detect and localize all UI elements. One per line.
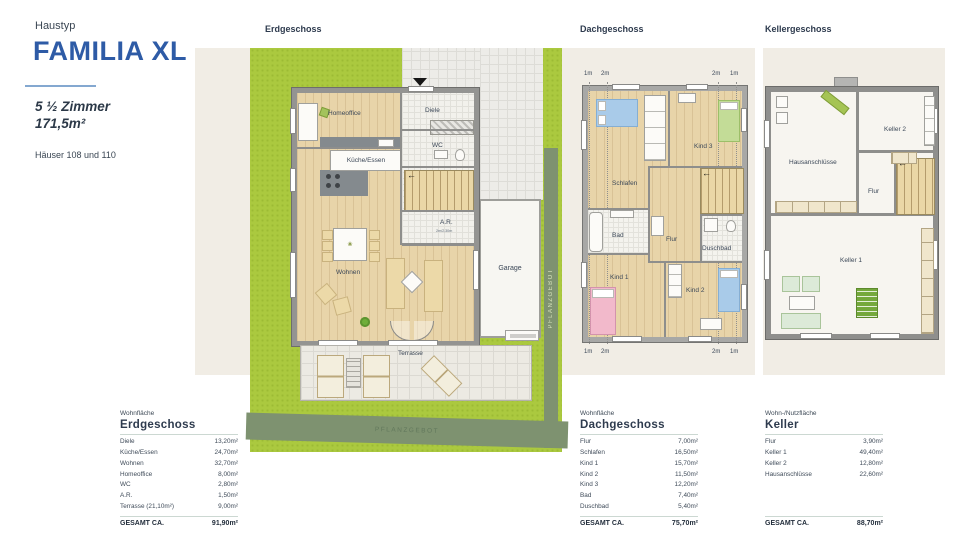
wardrobe [644,95,666,161]
divider [120,516,238,517]
eg-wall-stair-ar [402,210,474,212]
window [686,84,708,90]
table-rows: Flur3,90m² Keller 149,40m² Keller 212,80… [765,437,883,513]
kitchen-sink [378,139,394,147]
pillow [592,289,614,298]
eg-wall-wc-stair [402,166,474,168]
window [800,333,832,339]
stove-burners [326,174,331,179]
table-row: Kind 115,70m² [580,459,698,470]
dg-measure: 1m [584,349,592,355]
page-title: FAMILIA XL [33,36,187,67]
table-total: GESAMT CA.91,90m² [120,520,238,527]
area-table-erdgeschoss: Wohnfläche Erdgeschoss Diele13,20m² Küch… [120,410,238,527]
ar-label: A.R. [440,219,453,226]
table-row: A.R.1,50m² [120,491,238,502]
appliance [776,112,788,124]
table-row: Flur3,90m² [765,437,883,448]
entrance-arrow-icon [413,78,427,86]
pflanzgebot-hedge-label: PFLANZGEBOT [548,268,554,329]
dg-measure: 2m [712,349,720,355]
chair [322,252,333,262]
sofa [424,260,443,312]
table-row: Kind 312,20m² [580,480,698,491]
table-row: Hausanschlüsse22,60m² [765,470,883,481]
kueche-label: Küche/Essen [347,157,385,164]
keller2-label: Keller 2 [884,126,906,133]
garage-room: Garage [479,199,541,338]
dg-wall [648,166,650,262]
total-area: 171,5m² [35,116,85,131]
dg-wall [700,214,702,262]
pillow [720,270,738,278]
chair [369,252,380,262]
driveway [480,48,543,200]
table-row: Küche/Essen24,70m² [120,448,238,459]
wohnen-label: Wohnen [336,269,360,276]
schlafen-label: Schlafen [612,180,637,187]
eg-wall-ar-wohnen [402,243,474,246]
pflanzgebot-band-label: PFLANZGEBOT [375,426,439,435]
bench [781,313,821,329]
pillow [598,101,606,111]
table-title: Keller [765,419,883,431]
wardrobe-hatch [430,120,474,135]
kg-flur-label: Flur [868,188,879,195]
area-table-keller: Wohn-/Nutzfläche Keller Flur3,90m² Kelle… [765,410,883,527]
garage-sign-bar [510,334,536,338]
bad-label: Bad [612,232,624,239]
window [688,336,712,342]
table-row: Keller 212,80m² [765,459,883,470]
table-row: Wohnen32,70m² [120,459,238,470]
kind2-label: Kind 2 [686,287,704,294]
chair [322,241,333,251]
dg-measure: 2m [712,71,720,77]
divider [765,516,883,517]
house-numbers: Häuser 108 und 110 [35,150,116,160]
bathtub [589,212,603,252]
table-total: GESAMT CA.75,70m² [580,520,698,527]
window [741,108,747,132]
divider [120,434,238,435]
dg-wall [588,253,648,255]
kitchen-label-box: Küche/Essen [330,150,402,171]
window [581,120,587,150]
hedge-strip: PFLANZGEBOT [544,148,558,448]
appliance [776,96,788,108]
closet [668,264,682,298]
window [473,250,479,290]
seat [802,276,820,292]
eg-wall-vertical [400,93,402,245]
dg-wall [668,91,670,167]
eg-wall-diele-wc [402,129,474,131]
toilet [726,220,736,232]
pillow [720,102,738,110]
shelf [891,152,917,164]
wc-basin [434,150,448,159]
table-title: Erdgeschoss [120,419,238,431]
table-row: Diele13,20m² [120,437,238,448]
terrasse-label: Terrasse [398,350,423,357]
table-category: Wohn-/Nutzfläche [765,410,883,417]
window [741,284,747,310]
garage-label: Garage [498,265,521,272]
keller1-label: Keller 1 [840,257,862,264]
wc-label: WC [432,142,443,149]
homeoffice-desk [298,103,318,141]
kind1-label: Kind 1 [610,274,628,281]
table-total: GESAMT CA.88,70m² [765,520,883,527]
window [290,168,296,192]
shelf-column [921,228,934,334]
dg-measure: 2m [601,71,609,77]
table-row: Terrasse (21,10m²)9,00m² [120,502,238,513]
table-row: WC2,80m² [120,480,238,491]
terrace-steps [346,358,361,388]
window [612,336,642,342]
table-row: Duschbad5,40m² [580,502,698,513]
label-kellergeschoss: Kellergeschoss [765,24,832,34]
dg-stair-arrow: ← [702,169,711,178]
window [870,333,900,339]
rooms-count: 5 ½ Zimmer [35,99,110,114]
window [612,84,640,90]
pillow [598,115,606,125]
plant-icon [360,317,370,327]
area-table-dachgeschoss: Wohnfläche Dachgeschoss Flur7,00m² Schla… [580,410,698,527]
table-row: Bad7,40m² [580,491,698,502]
table [789,296,815,310]
hausanschluesse-label: Hausanschlüsse [789,159,837,166]
homeoffice-label: Homeoffice [328,110,361,117]
table-rows: Diele13,20m² Küche/Essen24,70m² Wohnen32… [120,437,238,513]
dg-measure: 1m [730,71,738,77]
dg-wall [664,262,666,337]
shelf-row [775,201,857,213]
terrace-sofa [363,355,390,398]
desk [700,318,722,330]
window [764,250,770,280]
terrace-sofa [317,355,344,398]
floorplan-sheet: Haustyp FAMILIA XL 5 ½ Zimmer 171,5m² Hä… [0,0,960,541]
table-row: Flur7,00m² [580,437,698,448]
duschbad-label: Duschbad [702,245,731,252]
dg-flur-label: Flur [666,236,677,243]
divider [580,434,698,435]
diele-label: Diele [425,107,440,114]
hall-cabinet [651,216,664,236]
window [764,120,770,148]
desk [678,93,696,103]
shower [704,218,718,232]
divider [765,434,883,435]
dg-measure: 1m [730,349,738,355]
chair [369,230,380,240]
dg-measure: 2m [601,349,609,355]
eg-hall-tiles [402,93,474,245]
table-category: Wohnfläche [120,410,238,417]
table-row: Homeoffice8,00m² [120,470,238,481]
seat [782,276,800,292]
window [581,262,587,288]
keller2-shelf [924,96,935,146]
eg-wall-homeoffice [297,147,400,149]
kicker-table [856,288,878,318]
divider [580,516,698,517]
wc-toilet [455,149,465,161]
garage-sign [505,330,539,341]
chair [322,230,333,240]
haustyp-eyebrow: Haustyp [35,20,75,32]
window [290,252,296,298]
window [290,108,296,134]
kind3-label: Kind 3 [694,143,712,150]
dg-wall [700,214,742,216]
ar-note: 2m/2,30m [436,228,452,233]
table-title: Dachgeschoss [580,419,698,431]
dining-table: ❀ [333,228,367,261]
table-row: Kind 211,50m² [580,470,698,481]
table-row: Keller 149,40m² [765,448,883,459]
table-row: Schlafen16,50m² [580,448,698,459]
double-basin [610,210,634,218]
kg-wall [856,92,859,215]
label-erdgeschoss: Erdgeschoss [265,24,322,34]
dg-wall [648,261,742,263]
chair [369,241,380,251]
table-rows: Flur7,00m² Schlafen16,50m² Kind 115,70m²… [580,437,698,513]
table-category: Wohnfläche [580,410,698,417]
title-underline [25,85,96,87]
entry-door [408,86,434,92]
dg-measure: 1m [584,71,592,77]
label-dachgeschoss: Dachgeschoss [580,24,644,34]
eg-stair-arrow: ← [407,171,416,180]
